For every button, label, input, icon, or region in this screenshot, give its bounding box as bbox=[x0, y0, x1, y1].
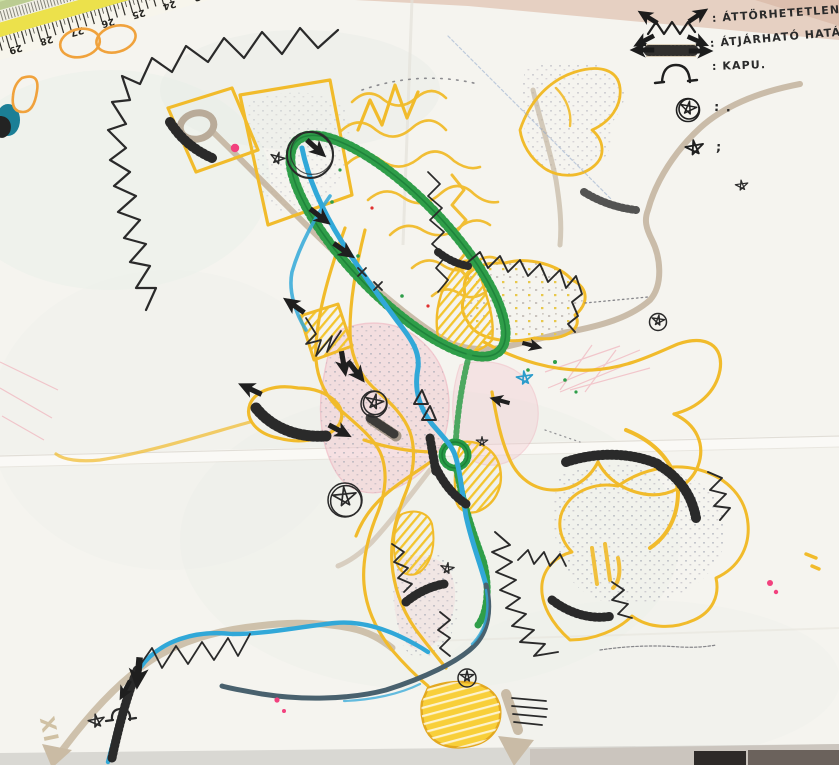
legend-label-gate: : KAPU. bbox=[712, 58, 767, 73]
legend-label-circled-star: : . bbox=[714, 100, 732, 116]
legend-label-star: ; bbox=[716, 140, 723, 155]
sketch-map-photo: 29 28 27 26 25 24 23 bbox=[0, 0, 839, 765]
